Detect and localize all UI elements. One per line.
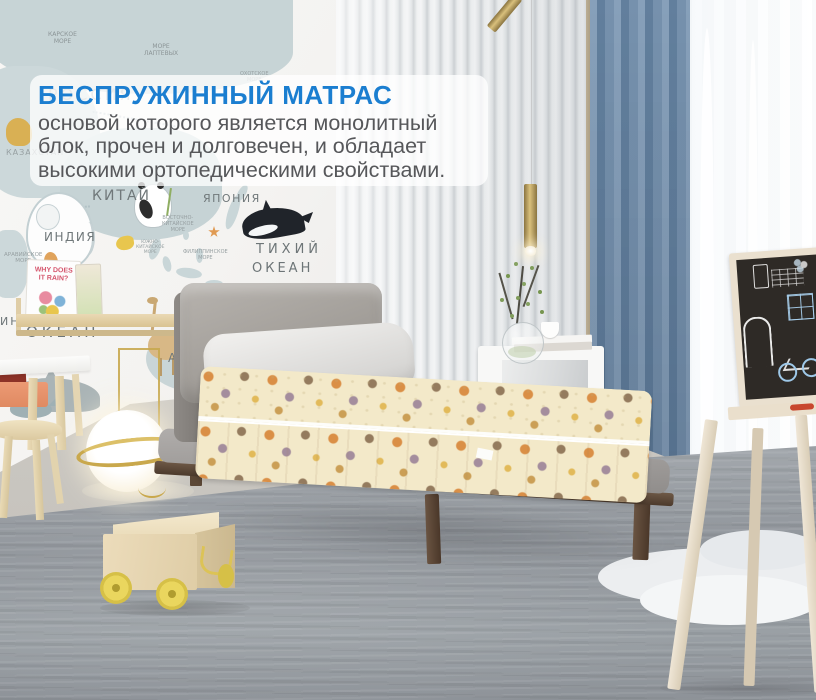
map-label: ИНДИЯ	[44, 231, 96, 245]
book-title: WHY DOES IT RAIN?	[27, 266, 80, 285]
pendant-light	[524, 184, 537, 248]
bed-leg	[425, 494, 441, 564]
cart-wheel	[156, 578, 188, 610]
map-label: МОРЕ ЛАПТЕВЫХ	[144, 44, 178, 58]
chalk-drawing-bicycle-wheel	[778, 362, 798, 382]
wall-shelf-rail	[16, 330, 182, 336]
floor-lamp-foot	[138, 478, 166, 498]
wall-shelf	[16, 314, 182, 327]
branch-leaves	[516, 296, 520, 300]
chalk-drawing-window	[787, 293, 815, 321]
promo-title: БЕСПРУЖИННЫЙ МАТРАС	[38, 81, 478, 110]
pendant-light-cable	[531, 0, 532, 186]
chalk-drawing-flower	[792, 257, 809, 274]
map-label: ТИХИЙ	[256, 243, 322, 258]
chalkboard-easel	[729, 247, 816, 407]
map-label: ЯПОНИЯ	[203, 193, 261, 206]
vase-water	[508, 346, 536, 358]
cart-wheel	[218, 564, 234, 588]
children-bedroom-photo: КАРСКОЕ МОРЕМОРЕ ЛАПТЕВЫХОХОТСКОЕ МОРЕРО…	[0, 0, 816, 700]
map-label: ЮЖНО- КИТАЙСКОЕ МОРЕ	[136, 240, 164, 256]
map-label: ВОСТОЧНО- КИТАЙСКОЕ МОРЕ	[162, 216, 194, 233]
map-label: КАРСКОЕ МОРЕ	[48, 32, 77, 46]
map-label: ОКЕАН	[252, 262, 313, 277]
promo-body-text: основой которого является монолитный бло…	[38, 112, 478, 183]
pendant-light-bulb	[525, 246, 536, 256]
curtain-pool	[640, 575, 816, 625]
kids-desk-drawer	[0, 382, 48, 407]
chalk-drawing-bicycle-wheel	[801, 357, 816, 377]
chalk-drawing-door	[742, 316, 773, 368]
promo-text-panel: БЕСПРУЖИННЫЙ МАТРАС основой которого явл…	[30, 75, 488, 186]
map-label: КИТАЙ	[92, 188, 151, 204]
chalk-drawing-jar	[753, 264, 770, 289]
map-label: ФИЛИППИНСКОЕ МОРЕ	[183, 250, 228, 262]
cart-wheel	[100, 572, 132, 604]
